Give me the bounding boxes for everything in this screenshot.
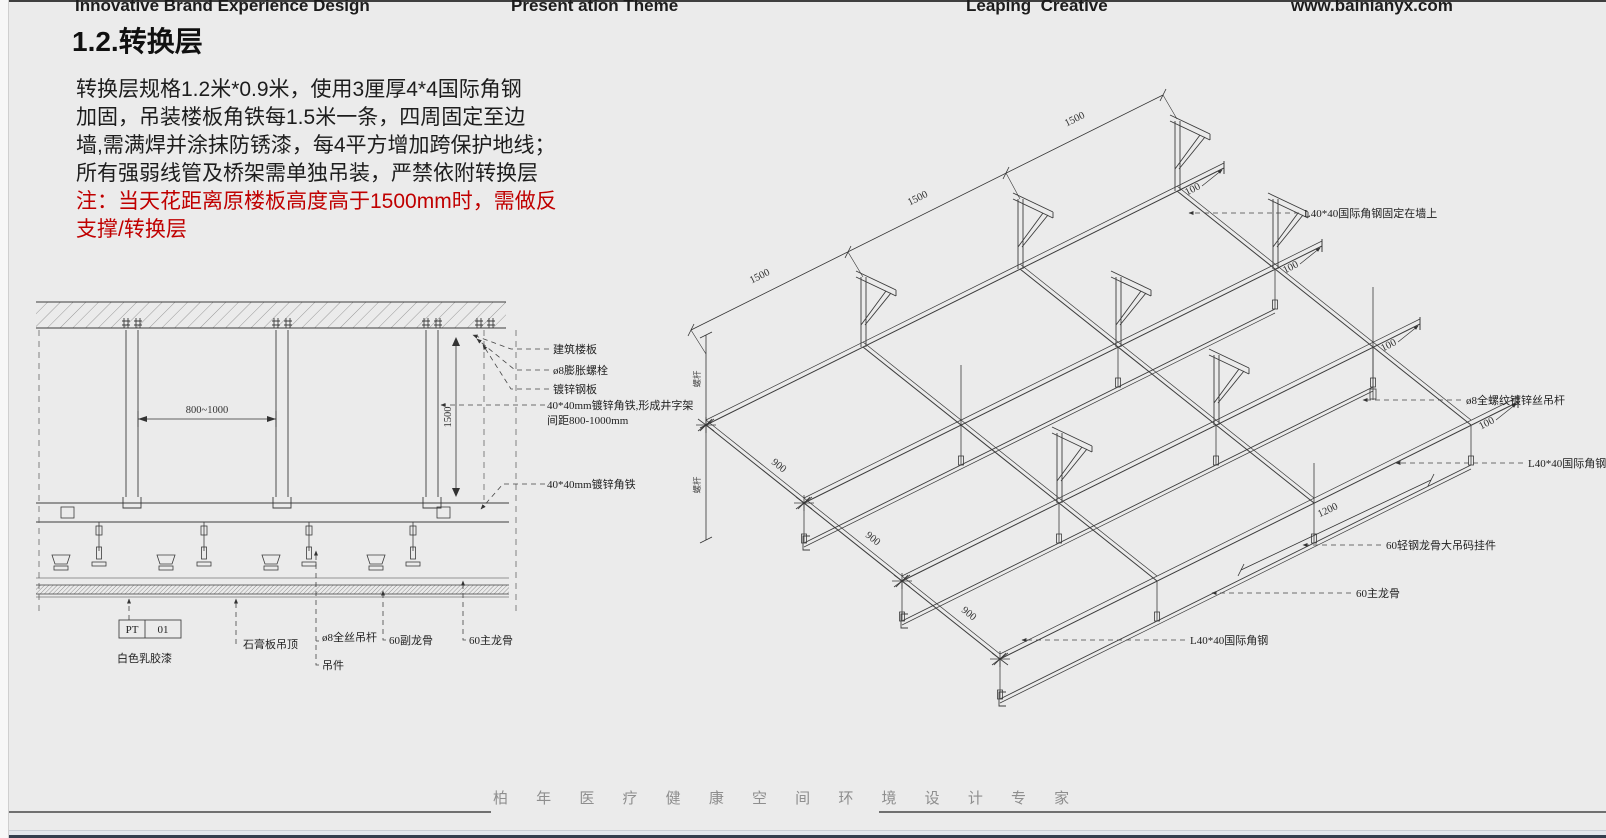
footer-rule-right: [879, 811, 1606, 813]
label-wall-angle: L40*40国际角钢固定在墙上: [1304, 206, 1437, 220]
label-paint-code-01: 01: [158, 624, 169, 636]
label-hanger-part: 吊件: [322, 659, 344, 672]
dim-900-label: 900: [863, 530, 882, 548]
slide: Innovative Brand Experience Design Prese…: [8, 0, 1606, 838]
header-brand: Leaping Creative: [966, 0, 1108, 16]
angle-iron-rails: [36, 503, 509, 522]
leader-lines: [129, 335, 549, 665]
description-note-line: 支撑/转换层: [76, 216, 616, 244]
description-line: 加固，吊装楼板角铁每1.5米一条，四周固定至边: [76, 104, 616, 132]
dim-100-label: 100: [1379, 337, 1398, 354]
iso-leader-lines: [1022, 213, 1523, 640]
dim-1200-label: 1200: [1316, 501, 1340, 520]
dim-height-label: 1500: [443, 407, 454, 428]
hanger-clips: [52, 555, 385, 570]
description-note-line: 注：当天花距离原楼板高度高于1500mm时，需做反: [76, 188, 616, 216]
dim-100-label: 100: [1281, 259, 1300, 276]
label-galvanized-plate: 镀锌钢板: [553, 382, 597, 396]
dimension-vertical: [700, 332, 712, 543]
label-main-runner: 60主龙骨: [469, 634, 513, 647]
label-paint-code-pt: PT: [126, 624, 139, 636]
label-angle-iron: 40*40mm镀锌角铁: [547, 477, 636, 491]
label-hanger-clip: 60轻钢龙骨大吊码挂件: [1386, 538, 1496, 552]
dimension-runner: [1238, 474, 1434, 576]
threaded-rods: [961, 287, 1376, 503]
footer-rule-left: [9, 811, 491, 813]
main-runner-channels: [803, 309, 1471, 706]
dim-1500-label: 1500: [1063, 110, 1087, 129]
label-gypsum-ceiling: 石膏板吊顶: [243, 637, 298, 651]
section-detail-diagram: 800~1000 1500 建筑楼板 ø8膨胀螺栓 镀锌钢板 40*: [31, 293, 711, 683]
label-building-slab: 建筑楼板: [553, 342, 597, 356]
dim-span-label: 800~1000: [186, 405, 228, 416]
grid-beams-longitudinal: [706, 161, 1518, 659]
label-angle-steel-right: L40*40国际角钢: [1528, 457, 1606, 470]
description-line: 墙,需满焊并涂抹防锈漆，每4平方增加跨保护地线；: [76, 132, 616, 160]
dim-1500-label: 1500: [748, 267, 772, 286]
description-line: 所有强弱线管及桥架需单独吊装，严禁依附转换层: [76, 160, 616, 188]
dim-100-label: 100: [1183, 181, 1202, 198]
label-white-paint: 白色乳胶漆: [117, 651, 172, 665]
dim-rod-label: 螺杆: [692, 476, 702, 494]
label-iso-main-runner: 60主龙骨: [1356, 587, 1400, 600]
dim-rod-label: 螺杆: [692, 370, 702, 388]
isometric-diagram: 1500 1500 1500 螺杆 螺杆 900 900 900 1200 10…: [661, 55, 1606, 715]
suspension-rods: [92, 522, 420, 566]
footer-tagline: 柏 年 医 疗 健 康 空 间 环 境 设 计 专 家: [493, 787, 885, 808]
description-block: 转换层规格1.2米*0.9米，使用3厘厚4*4国际角钢 加固，吊装楼板角铁每1.…: [76, 76, 616, 244]
header-theme: Present ation Theme: [511, 0, 678, 16]
dim-900-label: 900: [959, 605, 978, 623]
hanger-posts: [122, 318, 495, 508]
page-title: 1.2.转换层: [72, 20, 203, 60]
dimension-top: [688, 89, 1177, 354]
dim-1500-label: 1500: [906, 189, 930, 208]
dim-100-label: 100: [1477, 415, 1496, 432]
header-url: www.bainianyx.com: [1291, 0, 1453, 16]
dashed-guides: [39, 330, 516, 611]
building-slab: [36, 302, 506, 328]
label-full-thread-rod: ø8全丝吊杆: [322, 630, 377, 644]
header-tagline-en: Innovative Brand Experience Design: [75, 0, 370, 16]
label-expansion-bolt: ø8膨胀螺栓: [553, 363, 608, 377]
gypsum-ceiling-board: [36, 578, 509, 597]
description-line: 转换层规格1.2米*0.9米，使用3厘厚4*4国际角钢: [76, 76, 616, 104]
label-angle-steel-bottom: L40*40国际角钢: [1190, 634, 1268, 647]
label-secondary-runner: 60副龙骨: [389, 634, 433, 647]
label-angle-iron-grid-2: 间距800-1000mm: [547, 414, 629, 427]
label-threaded-rod: ø8全螺纹镀锌丝吊杆: [1466, 393, 1565, 407]
